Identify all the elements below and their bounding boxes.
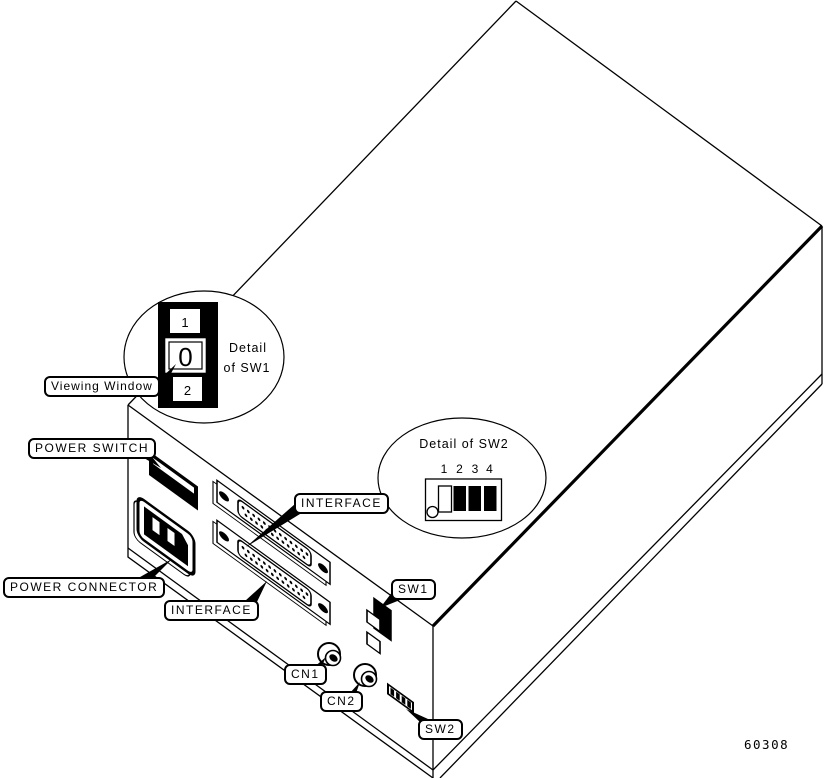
sw2-detail-toggle-1-open xyxy=(439,486,452,512)
power-switch-component xyxy=(150,453,197,509)
sw1-detail-bottom-digit: 2 xyxy=(184,383,191,398)
viewing-window-label: Viewing Window xyxy=(44,376,160,397)
sw2-detail-circle: Detail of SW2 1 2 3 4 xyxy=(378,418,546,538)
power-connector-label: POWER CONNECTOR xyxy=(3,577,165,598)
sw1-window-value: 0 xyxy=(178,342,192,372)
chassis-top-right-edge xyxy=(516,1,822,226)
sw2-component xyxy=(388,684,413,712)
sw2-detail-title: Detail of SW2 xyxy=(419,437,508,451)
sw1-detail-title-line2: of SW1 xyxy=(224,361,271,375)
sw2-detail-toggle-2 xyxy=(454,486,467,511)
sw2-detail-pos2: 2 xyxy=(456,462,463,476)
sw2-label: SW2 xyxy=(418,719,463,740)
cn1-label: CN1 xyxy=(284,664,327,685)
rear-panel-components xyxy=(134,420,413,740)
cn2-label: CN2 xyxy=(320,691,363,712)
interface-top-label: INTERFACE xyxy=(294,493,389,514)
sw2-detail-orientation-dot xyxy=(427,507,438,518)
power-switch-label: POWER SWITCH xyxy=(28,438,156,459)
sw1-detail-circle: 1 0 2 Detail of SW1 xyxy=(124,291,284,423)
sw2-detail-toggle-4 xyxy=(484,486,497,511)
figure-number: 60308 xyxy=(744,737,789,752)
sw2-detail-pos4: 4 xyxy=(486,462,493,476)
cn2-jack xyxy=(354,664,377,687)
sw2-detail-pos3: 3 xyxy=(472,462,479,476)
sw1-label: SW1 xyxy=(391,579,436,600)
sw1-detail-title-line1: Detail xyxy=(229,341,267,355)
sw2-detail-pos1: 1 xyxy=(441,462,448,476)
rear-panel-diagram: 1 0 2 Detail of SW1 Detail of SW2 1 2 3 … xyxy=(0,0,825,778)
sw1-detail-top-digit: 1 xyxy=(181,315,188,330)
interface-bottom-label: INTERFACE xyxy=(164,600,259,621)
sw2-detail-toggle-3 xyxy=(469,486,482,511)
